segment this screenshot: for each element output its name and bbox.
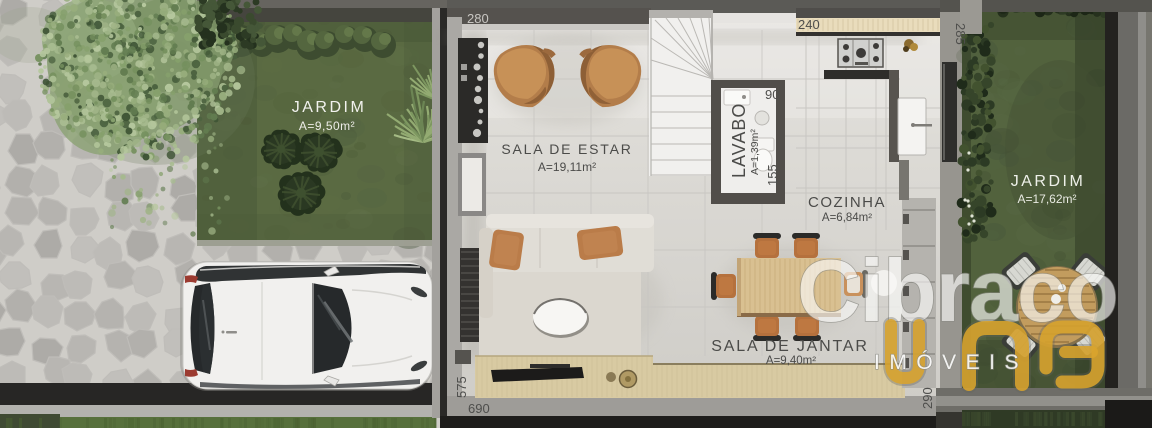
svg-text:90: 90 [765,87,779,102]
svg-text:A=19,11m²: A=19,11m² [538,160,596,174]
svg-text:COZINHA: COZINHA [808,194,886,211]
svg-text:240: 240 [798,17,820,32]
svg-text:A=6,84m²: A=6,84m² [822,212,872,224]
svg-text:A=1,39m²: A=1,39m² [749,129,761,175]
svg-text:JARDIM: JARDIM [292,99,367,116]
svg-text:155: 155 [765,164,780,186]
svg-text:290: 290 [920,387,935,409]
svg-text:JARDIM: JARDIM [1011,173,1086,190]
svg-text:690: 690 [468,401,490,416]
svg-text:280: 280 [467,11,489,26]
svg-text:575: 575 [454,376,469,398]
svg-text:SALA DE JANTAR: SALA DE JANTAR [711,338,868,355]
svg-text:IMÓVEIS: IMÓVEIS [874,351,1028,374]
svg-text:A=9,40m²: A=9,40m² [766,355,816,367]
svg-text:A=9,50m²: A=9,50m² [299,119,355,133]
svg-text:A=17,62m²: A=17,62m² [1017,192,1076,206]
svg-text:LAVABO: LAVABO [729,103,749,178]
svg-text:SALA DE ESTAR: SALA DE ESTAR [501,141,632,157]
svg-text:285: 285 [953,23,968,45]
